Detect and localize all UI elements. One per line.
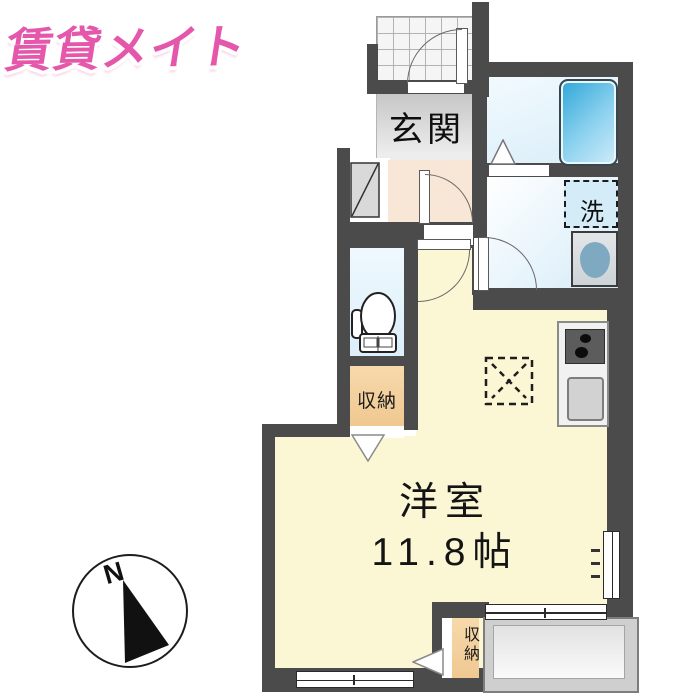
logo: 賃貸メイト (1, 8, 253, 81)
window-east (603, 531, 620, 599)
storage-lower-label: 収納 (457, 626, 481, 664)
storage-closet-lower: 収納 (452, 618, 479, 678)
laundry-label: 洗 (580, 192, 604, 227)
window-vent-dash (591, 549, 600, 552)
window-line (297, 680, 413, 682)
stove-icon (565, 329, 605, 364)
wall (432, 602, 489, 618)
storage-upper-label: 収納 (357, 386, 397, 413)
toilet-door-leaf (417, 239, 471, 250)
window-south (296, 671, 414, 688)
burner-icon (575, 347, 588, 358)
window-vent-dash (591, 575, 600, 578)
wall (337, 245, 350, 430)
wall (262, 424, 275, 692)
toilet-icon (350, 290, 398, 362)
bath-door-triangle-icon (490, 139, 516, 165)
bathtub (559, 79, 618, 166)
storage-closet-upper: 収納 (350, 366, 404, 426)
room-name: 洋室 (320, 478, 570, 528)
burner-icon (580, 334, 591, 343)
washbasin (571, 231, 618, 287)
window-tick (353, 675, 355, 685)
room-size: 11.8帖 (320, 528, 570, 578)
laundry-space: 洗 (564, 180, 618, 228)
wall (404, 245, 418, 430)
kitchen-sink-icon (567, 377, 604, 421)
window-vent-dash (591, 562, 600, 565)
shoe-cabinet-icon (350, 162, 380, 218)
closet-door-triangle-icon (351, 434, 385, 462)
bath-door-opening (489, 165, 549, 176)
kitchen-counter (557, 321, 609, 427)
window-line (612, 532, 614, 598)
main-room-label: 洋室 11.8帖 (320, 478, 570, 578)
wall (432, 678, 489, 692)
wall (473, 288, 633, 310)
window-balcony (485, 604, 607, 620)
balcony (483, 617, 639, 693)
washbasin-bowl-icon (580, 242, 610, 278)
wall (472, 2, 489, 97)
window-line (486, 612, 606, 614)
window-tick (544, 608, 546, 618)
wall (483, 62, 633, 77)
ceiling-hatch-icon (484, 356, 534, 406)
closet-door-triangle-icon (412, 648, 444, 676)
wall (618, 62, 633, 307)
wall (262, 424, 352, 437)
entrance-label: 玄関 (389, 102, 465, 151)
balcony-floor (493, 625, 625, 679)
floorplan-canvas: 洗 収納 収納 (0, 0, 700, 700)
compass-needle-icon (100, 575, 180, 670)
